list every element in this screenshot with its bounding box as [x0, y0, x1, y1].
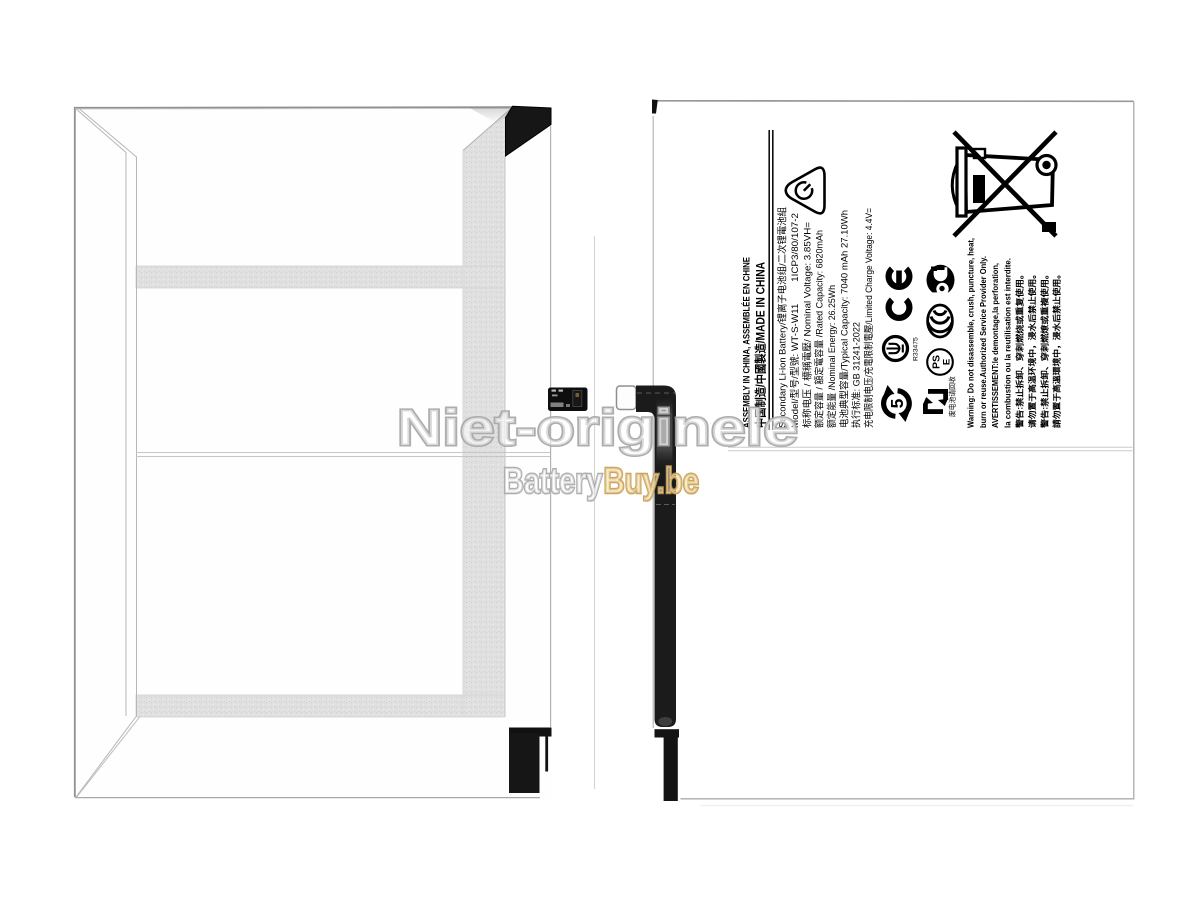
svg-text:Niet-originele: Niet-originele	[397, 399, 798, 456]
svg-text:AVERTISSEMENT:le demontage,la: AVERTISSEMENT:le demontage,la perforatio…	[991, 263, 1000, 428]
svg-text:Secondary Li-ion Battery/锂离子电池: Secondary Li-ion Battery/锂离子电池组/二次锂電池組	[777, 207, 789, 428]
svg-text:Battery: Battery	[503, 460, 603, 501]
svg-text:請勿置于高溫環境中，浸水后禁止使用。: 請勿置于高溫環境中，浸水后禁止使用。	[1052, 270, 1062, 428]
svg-text:额定能量 /Nominal Energy: 26.25Wh: 额定能量 /Nominal Energy: 26.25Wh	[826, 285, 838, 428]
svg-text:R33475: R33475	[913, 337, 920, 361]
svg-text:标称电压 / 標稱電壓/ Nominal Voltage:: 标称电压 / 標稱電壓/ Nominal Voltage: 3.85VH=	[801, 222, 813, 428]
svg-text:电池典型容量/Typical Capacity: 7040: 电池典型容量/Typical Capacity: 7040 mAh 27.10W…	[838, 210, 850, 428]
svg-text:废电池请回收: 废电池请回收	[948, 376, 957, 417]
svg-text:Warning: Do not disassemble, c: Warning: Do not disassemble, crush, punc…	[967, 238, 976, 428]
svg-text:Buy.be: Buy.be	[604, 460, 700, 501]
svg-text:5: 5	[887, 398, 907, 408]
svg-text:Model/型号/型號: WT-S-W11 1: Model/型号/型號: WT-S-W11 1ICP3/80/107-2	[789, 213, 801, 428]
svg-text:额定容量 / 額定電容量 /Rated Capacity:: 额定容量 / 額定電容量 /Rated Capacity: 6820mAh	[814, 230, 826, 428]
svg-text:burn or reuse.Authorized Servi: burn or reuse.Authorized Service Provide…	[979, 256, 988, 428]
svg-text:执行标准: GB 31241-2022: 执行标准: GB 31241-2022	[851, 322, 863, 428]
svg-text:充电限制电压/充電限制電壓/Limited Charge V: 充电限制电压/充電限制電壓/Limited Charge Voltage: 4.…	[863, 208, 875, 428]
svg-text:警告:禁止拆卸、穿刺燃燎或重複使用。: 警告:禁止拆卸、穿刺燃燎或重複使用。	[1039, 270, 1049, 428]
svg-text:la combustion ou la reutilisat: la combustion ou la reutilisation est in…	[1003, 258, 1012, 428]
svg-text:E: E	[942, 359, 953, 365]
svg-text:请勿置于高温环境中，浸水后禁止使用。: 请勿置于高温环境中，浸水后禁止使用。	[1027, 270, 1037, 428]
svg-text:警告:禁止拆卸、穿刺燃烧或重复使用。: 警告:禁止拆卸、穿刺燃烧或重复使用。	[1015, 270, 1025, 428]
